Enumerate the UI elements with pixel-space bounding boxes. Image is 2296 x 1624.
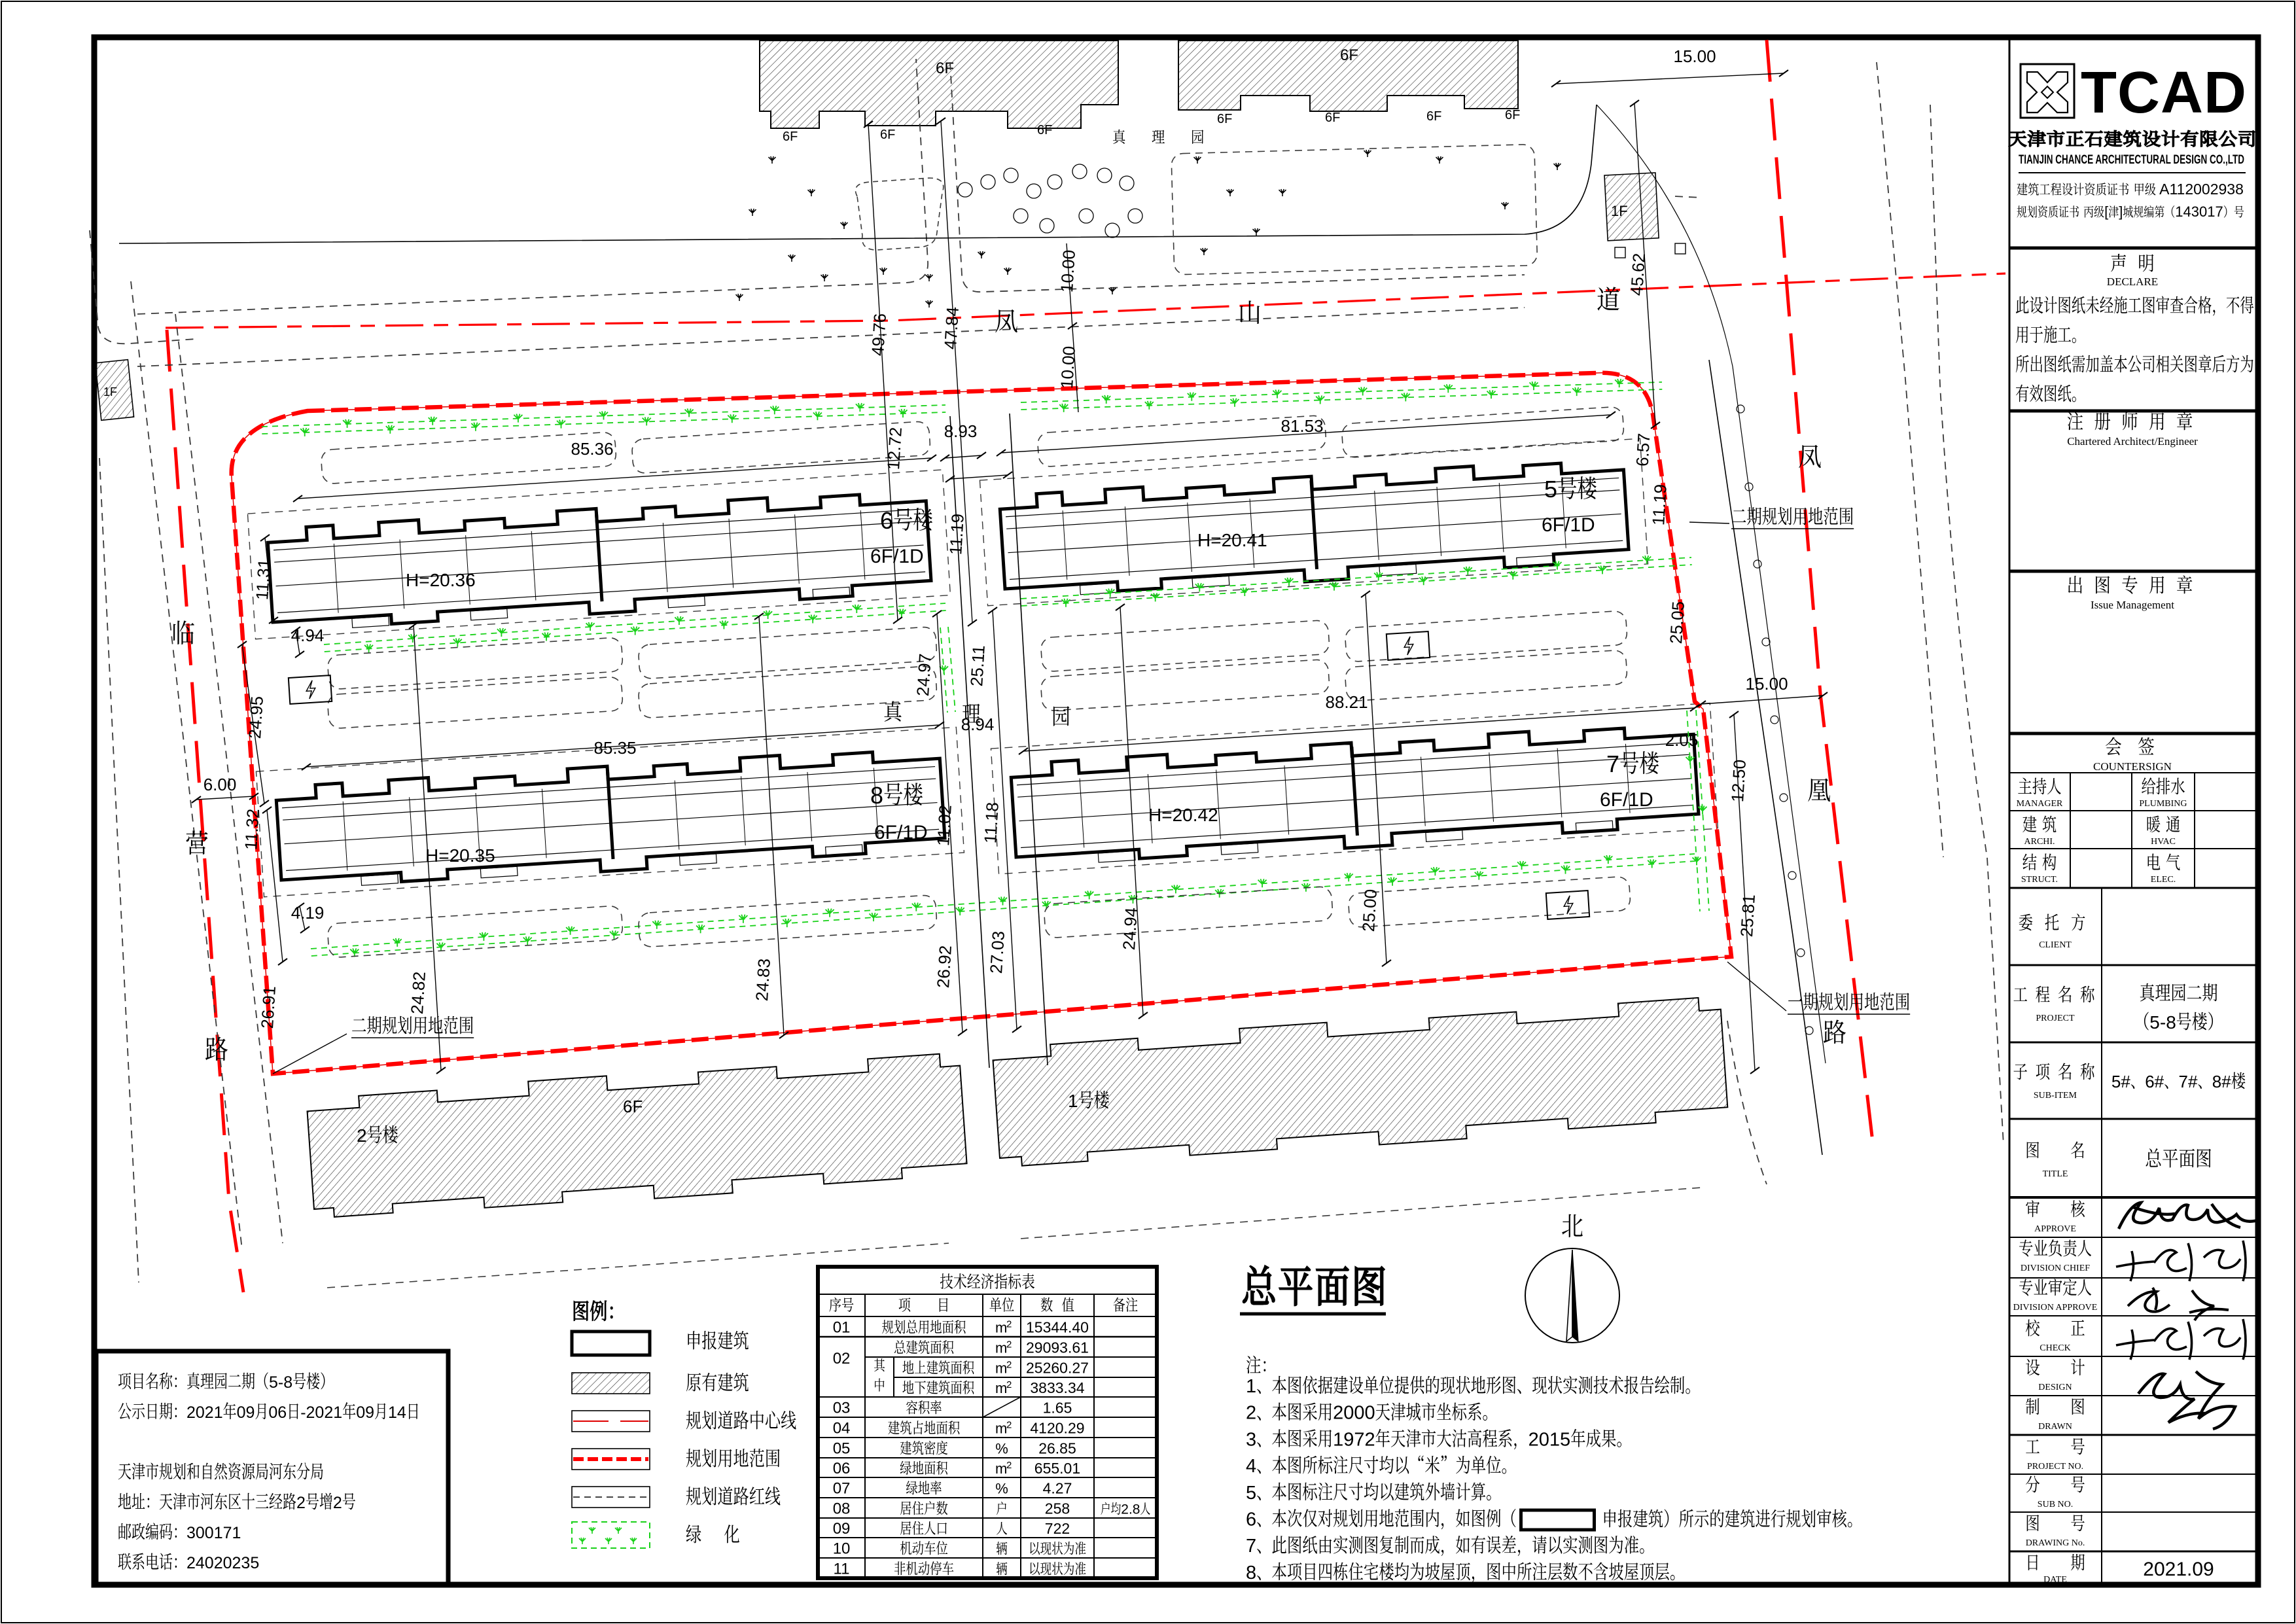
svg-text:1F: 1F [1611, 203, 1628, 219]
svg-text:%: % [995, 1441, 1008, 1457]
svg-text:TITLE: TITLE [2043, 1169, 2068, 1179]
svg-text:]: ] [2119, 203, 2123, 220]
svg-text:05: 05 [833, 1440, 851, 1458]
svg-text:24.82: 24.82 [407, 971, 429, 1015]
svg-text:2: 2 [1006, 1339, 1012, 1350]
svg-text:300171: 300171 [186, 1524, 241, 1542]
svg-text:5-8: 5-8 [269, 1373, 292, 1392]
svg-text:11.19: 11.19 [945, 513, 968, 556]
svg-text:6F/1D: 6F/1D [874, 822, 928, 843]
svg-text:H=20.41: H=20.41 [1197, 530, 1267, 550]
svg-text:8.93: 8.93 [944, 421, 978, 441]
svg-text:DESIGN: DESIGN [2038, 1383, 2072, 1392]
svg-text:47.84: 47.84 [940, 306, 963, 350]
svg-text:26.91: 26.91 [257, 985, 279, 1029]
svg-text:6F/1D: 6F/1D [1542, 514, 1595, 536]
svg-text:TCAD: TCAD [2081, 60, 2247, 126]
svg-text:6F: 6F [623, 1097, 643, 1116]
svg-text:1F: 1F [103, 385, 117, 398]
svg-text:06: 06 [833, 1460, 851, 1477]
svg-text:11.02: 11.02 [933, 804, 955, 847]
svg-text:8: 8 [1246, 1562, 1256, 1583]
svg-text:DECLARE: DECLARE [2107, 275, 2158, 288]
svg-text:25.00: 25.00 [1358, 889, 1381, 932]
svg-text:1: 1 [1068, 1091, 1078, 1111]
svg-text:2: 2 [1006, 1460, 1012, 1471]
svg-text:SUB NO.: SUB NO. [2038, 1500, 2073, 1509]
svg-text:15344.40: 15344.40 [1026, 1319, 1089, 1336]
svg-text:6.57: 6.57 [1633, 432, 1654, 467]
svg-text:m: m [995, 1460, 1007, 1477]
svg-text:12.50: 12.50 [1727, 759, 1750, 803]
svg-text:08: 08 [833, 1500, 851, 1518]
svg-text:27.03: 27.03 [986, 930, 1008, 974]
svg-text:04: 04 [833, 1420, 851, 1438]
svg-text:24.95: 24.95 [245, 696, 267, 739]
svg-text:DRAWING No.: DRAWING No. [2026, 1538, 2085, 1548]
svg-text:6F: 6F [1037, 123, 1052, 137]
svg-text:5: 5 [1246, 1483, 1256, 1504]
svg-text:ELEC.: ELEC. [2151, 875, 2176, 885]
svg-text:SUB-ITEM: SUB-ITEM [2034, 1091, 2077, 1101]
svg-text:24.83: 24.83 [752, 958, 774, 1002]
svg-text:6F: 6F [1325, 111, 1340, 125]
svg-text:24.94: 24.94 [1119, 907, 1141, 951]
svg-text:4120.29: 4120.29 [1030, 1420, 1084, 1437]
svg-text:5-8: 5-8 [2149, 1012, 2176, 1033]
svg-text:655.01: 655.01 [1034, 1460, 1080, 1477]
svg-text:Chartered Architect/Engineer: Chartered Architect/Engineer [2067, 435, 2198, 448]
svg-text:6.00: 6.00 [203, 775, 237, 794]
svg-text:H=20.42: H=20.42 [1148, 805, 1218, 825]
svg-text:45.62: 45.62 [1627, 253, 1649, 296]
svg-text:STRUCT.: STRUCT. [2021, 875, 2058, 885]
svg-text:2: 2 [1246, 1403, 1256, 1424]
svg-text:2.8: 2.8 [1121, 1502, 1140, 1517]
svg-text:6F: 6F [1340, 46, 1358, 64]
svg-text:H=20.36: H=20.36 [406, 570, 476, 590]
svg-text:3: 3 [1246, 1429, 1256, 1450]
svg-text:258: 258 [1045, 1500, 1070, 1517]
svg-text:09: 09 [237, 1403, 255, 1422]
svg-text:DIVISION APPROVE: DIVISION APPROVE [2013, 1303, 2098, 1313]
svg-text:CLIENT: CLIENT [2039, 940, 2072, 950]
svg-text:11.32: 11.32 [241, 808, 263, 851]
svg-text:6F/1D: 6F/1D [1600, 789, 1653, 811]
svg-text:15.00: 15.00 [1674, 46, 1716, 66]
svg-text:7#: 7# [2179, 1072, 2198, 1091]
svg-text:01: 01 [833, 1319, 851, 1337]
svg-text:DATE: DATE [2043, 1575, 2067, 1585]
svg-text:25260.27: 25260.27 [1026, 1360, 1089, 1377]
svg-text:6F: 6F [880, 128, 895, 142]
svg-text:HVAC: HVAC [2151, 837, 2176, 847]
svg-text:6F: 6F [936, 60, 954, 77]
svg-text:8: 8 [870, 782, 883, 809]
svg-text:722: 722 [1045, 1520, 1070, 1537]
svg-text:TIANJIN CHANCE ARCHITECTURAL D: TIANJIN CHANCE ARCHITECTURAL DESIGN CO.,… [2019, 153, 2244, 167]
svg-text:DRAWN: DRAWN [2038, 1422, 2072, 1432]
svg-text:CHECK: CHECK [2040, 1343, 2070, 1353]
svg-text:10.00: 10.00 [1057, 249, 1079, 293]
svg-text:6F: 6F [1217, 112, 1232, 126]
svg-text:81.53: 81.53 [1281, 416, 1324, 436]
svg-text:4.94: 4.94 [291, 626, 325, 645]
svg-text:29093.61: 29093.61 [1026, 1339, 1089, 1356]
svg-text:1.65: 1.65 [1043, 1400, 1072, 1417]
svg-text:PROJECT: PROJECT [2036, 1014, 2075, 1023]
svg-text:4.27: 4.27 [1043, 1480, 1072, 1497]
svg-text:COUNTERSIGN: COUNTERSIGN [2093, 760, 2172, 773]
svg-text:4.19: 4.19 [291, 903, 325, 923]
svg-text:Issue Management: Issue Management [2091, 599, 2174, 611]
svg-text:6#: 6# [2145, 1072, 2164, 1091]
svg-text:A112002938: A112002938 [2156, 181, 2244, 198]
svg-text:09: 09 [833, 1520, 851, 1538]
svg-text:6F: 6F [783, 130, 798, 144]
svg-text:DIVISION CHIEF: DIVISION CHIEF [2021, 1263, 2090, 1273]
svg-text:11.31: 11.31 [252, 558, 274, 601]
svg-text:[: [ [2104, 203, 2108, 220]
svg-text:12.72: 12.72 [883, 427, 906, 470]
svg-text:2021.09: 2021.09 [2143, 1559, 2214, 1580]
svg-text:09: 09 [356, 1403, 374, 1422]
svg-text:14: 14 [388, 1403, 406, 1422]
svg-text:26.85: 26.85 [1038, 1440, 1076, 1457]
svg-text:6F/1D: 6F/1D [870, 546, 924, 567]
svg-text:m: m [995, 1421, 1007, 1437]
svg-text:2015: 2015 [1528, 1429, 1571, 1450]
svg-text:PLUMBING: PLUMBING [2139, 799, 2187, 809]
svg-text:02: 02 [833, 1350, 851, 1368]
svg-text:5#: 5# [2111, 1072, 2130, 1091]
svg-text:m: m [995, 1340, 1007, 1356]
svg-text:07: 07 [833, 1480, 851, 1498]
svg-text:%: % [995, 1481, 1008, 1497]
svg-text:143017: 143017 [2175, 203, 2223, 220]
svg-text:11.19: 11.19 [1648, 484, 1670, 526]
svg-text:7: 7 [1606, 750, 1619, 777]
svg-text:1: 1 [1246, 1376, 1256, 1397]
svg-text:85.36: 85.36 [571, 439, 614, 459]
svg-text:2: 2 [1006, 1379, 1012, 1390]
svg-text:ARCHI.: ARCHI. [2024, 837, 2055, 847]
svg-text:15.00: 15.00 [1746, 674, 1788, 694]
svg-text:25.11: 25.11 [966, 644, 989, 687]
svg-text:H=20.35: H=20.35 [425, 845, 495, 866]
svg-text:2000: 2000 [1333, 1403, 1375, 1424]
svg-text:24.97: 24.97 [913, 653, 935, 697]
svg-text:88.21: 88.21 [1326, 692, 1368, 712]
svg-text:06: 06 [268, 1403, 287, 1422]
svg-text:10.00: 10.00 [1057, 345, 1079, 389]
svg-text:2: 2 [1006, 1360, 1012, 1371]
svg-text:11: 11 [834, 1561, 850, 1578]
svg-text:2.05: 2.05 [1665, 730, 1699, 750]
svg-text:8#: 8# [2212, 1072, 2231, 1091]
svg-text:-2021: -2021 [300, 1403, 342, 1422]
svg-text:APPROVE: APPROVE [2034, 1224, 2076, 1234]
svg-text:1972: 1972 [1333, 1429, 1375, 1450]
svg-text:25.81: 25.81 [1737, 894, 1759, 938]
svg-text:2021: 2021 [186, 1403, 223, 1422]
svg-text:49.76: 49.76 [868, 313, 890, 357]
svg-text:2: 2 [1006, 1319, 1012, 1330]
svg-text:MANAGER: MANAGER [2017, 799, 2063, 809]
svg-text:85.35: 85.35 [594, 738, 637, 758]
svg-text:6F: 6F [1505, 108, 1520, 122]
svg-text:m: m [995, 1380, 1007, 1396]
svg-text:2: 2 [333, 1494, 342, 1512]
svg-text:2: 2 [1006, 1420, 1012, 1431]
svg-text:m: m [995, 1320, 1007, 1336]
svg-text:11.18: 11.18 [980, 802, 1002, 844]
svg-text:24020235: 24020235 [186, 1554, 259, 1572]
svg-text:03: 03 [833, 1400, 851, 1417]
svg-text:4: 4 [1246, 1456, 1256, 1477]
svg-text:25.05: 25.05 [1666, 601, 1688, 644]
svg-text:6F: 6F [1426, 109, 1441, 124]
svg-text:5: 5 [1544, 476, 1557, 503]
svg-text:3833.34: 3833.34 [1030, 1379, 1084, 1396]
svg-text:26.92: 26.92 [933, 945, 955, 989]
svg-text:7: 7 [1246, 1536, 1256, 1557]
svg-text:2: 2 [357, 1125, 367, 1146]
svg-text:PROJECT NO.: PROJECT NO. [2027, 1462, 2083, 1472]
svg-text:6: 6 [1246, 1509, 1256, 1530]
svg-text:10: 10 [833, 1540, 851, 1558]
svg-text:m: m [995, 1360, 1007, 1377]
svg-text:2: 2 [296, 1494, 306, 1512]
